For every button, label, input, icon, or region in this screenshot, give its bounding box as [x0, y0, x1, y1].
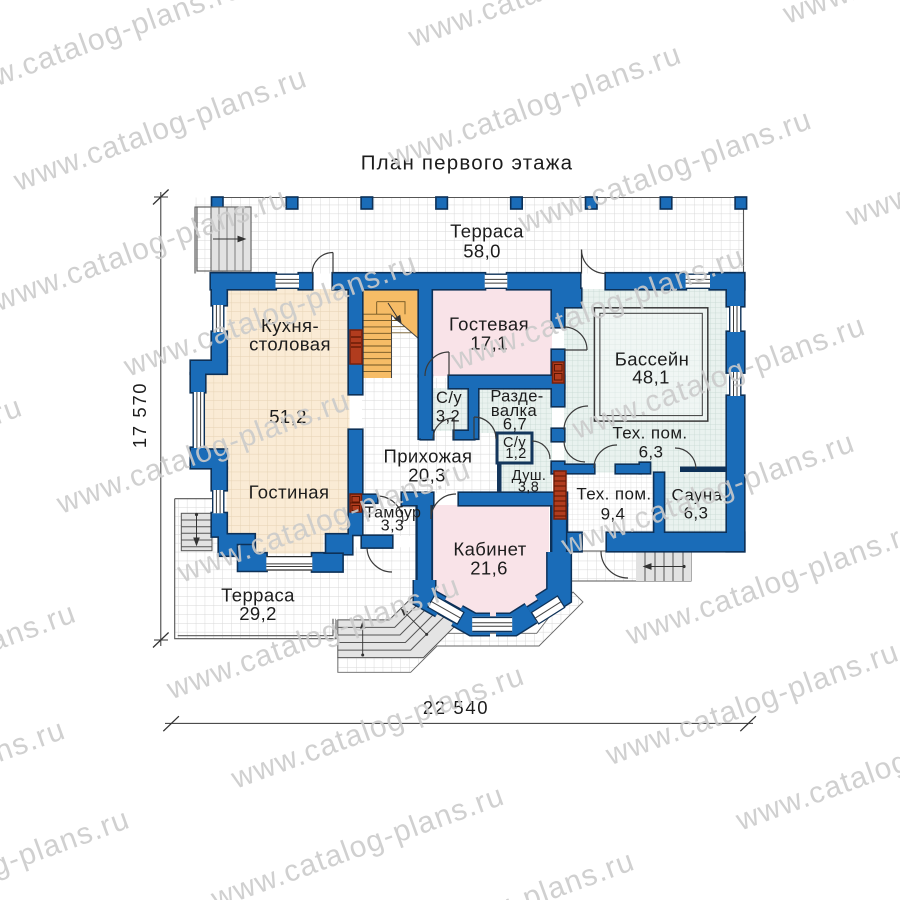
svg-text:6,3: 6,3 — [639, 443, 664, 462]
svg-text:58,0: 58,0 — [463, 241, 501, 262]
svg-text:1,2: 1,2 — [505, 446, 526, 462]
svg-text:3,3: 3,3 — [381, 518, 404, 535]
svg-text:Терраса: Терраса — [450, 221, 524, 242]
svg-text:Кабинет: Кабинет — [453, 539, 526, 560]
svg-text:С/у: С/у — [436, 389, 462, 407]
svg-text:3,2: 3,2 — [436, 408, 460, 426]
svg-text:29,2: 29,2 — [239, 603, 277, 624]
svg-text:Гостиная: Гостиная — [249, 482, 330, 503]
svg-text:столовая: столовая — [249, 334, 331, 355]
svg-text:3,8: 3,8 — [518, 480, 539, 496]
svg-text:21,6: 21,6 — [470, 558, 508, 579]
svg-text:17 570: 17 570 — [129, 382, 150, 448]
svg-text:6,7: 6,7 — [503, 416, 527, 434]
